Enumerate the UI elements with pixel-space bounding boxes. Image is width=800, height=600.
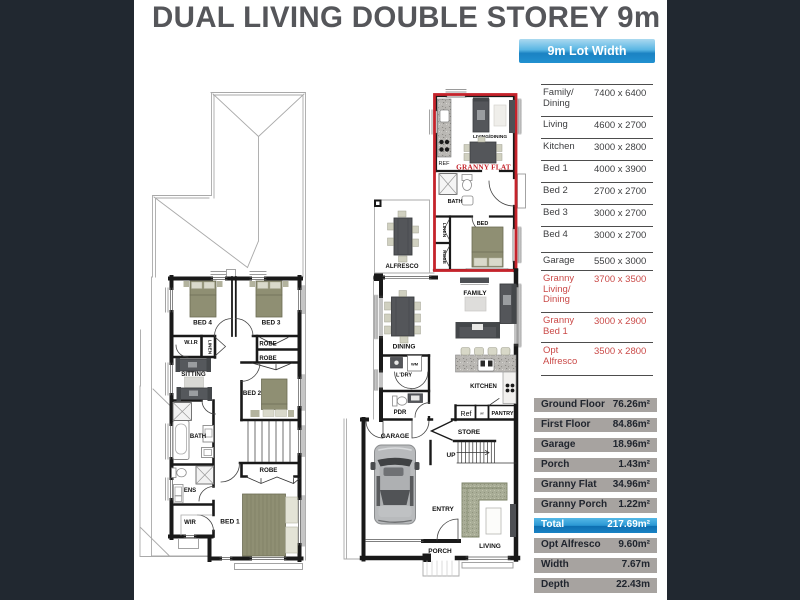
svg-text:DINING: DINING	[393, 344, 416, 351]
svg-text:FAMILY: FAMILY	[463, 290, 487, 297]
svg-text:PDR: PDR	[394, 410, 407, 416]
svg-text:WIR: WIR	[184, 520, 196, 526]
svg-text:STORE: STORE	[458, 429, 481, 436]
svg-text:wr: wr	[480, 412, 485, 416]
svg-text:WM: WM	[411, 362, 419, 367]
svg-text:BATH: BATH	[190, 434, 206, 440]
svg-text:PORCH: PORCH	[428, 548, 452, 555]
svg-text:Ref: Ref	[461, 411, 472, 418]
svg-text:LIVING: LIVING	[479, 543, 501, 550]
svg-text:L'DRY: L'DRY	[396, 373, 412, 379]
svg-text:ROBE: ROBE	[260, 467, 278, 474]
svg-text:W.I.R: W.I.R	[184, 340, 197, 346]
svg-text:ENTRY: ENTRY	[432, 506, 454, 513]
svg-text:ENS: ENS	[184, 488, 196, 494]
svg-text:ROBE: ROBE	[259, 356, 276, 362]
svg-text:UP: UP	[446, 452, 456, 459]
svg-text:BATH: BATH	[448, 199, 463, 205]
svg-text:ROBE: ROBE	[259, 342, 276, 348]
svg-text:BED 1: BED 1	[220, 519, 240, 526]
svg-text:BED 4: BED 4	[193, 320, 212, 327]
svg-text:KITCHEN: KITCHEN	[470, 384, 497, 390]
svg-text:BED: BED	[477, 221, 489, 227]
svg-text:REF: REF	[439, 161, 451, 167]
svg-text:LINEN: LINEN	[207, 340, 213, 355]
svg-text:GRANNY FLAT: GRANNY FLAT	[456, 163, 511, 172]
svg-text:GARAGE: GARAGE	[381, 433, 410, 440]
svg-text:BED 2: BED 2	[243, 390, 262, 397]
svg-text:PANTRY: PANTRY	[492, 411, 514, 417]
svg-text:BED 3: BED 3	[262, 320, 281, 327]
svg-text:ALFRESCO: ALFRESCO	[386, 264, 419, 270]
